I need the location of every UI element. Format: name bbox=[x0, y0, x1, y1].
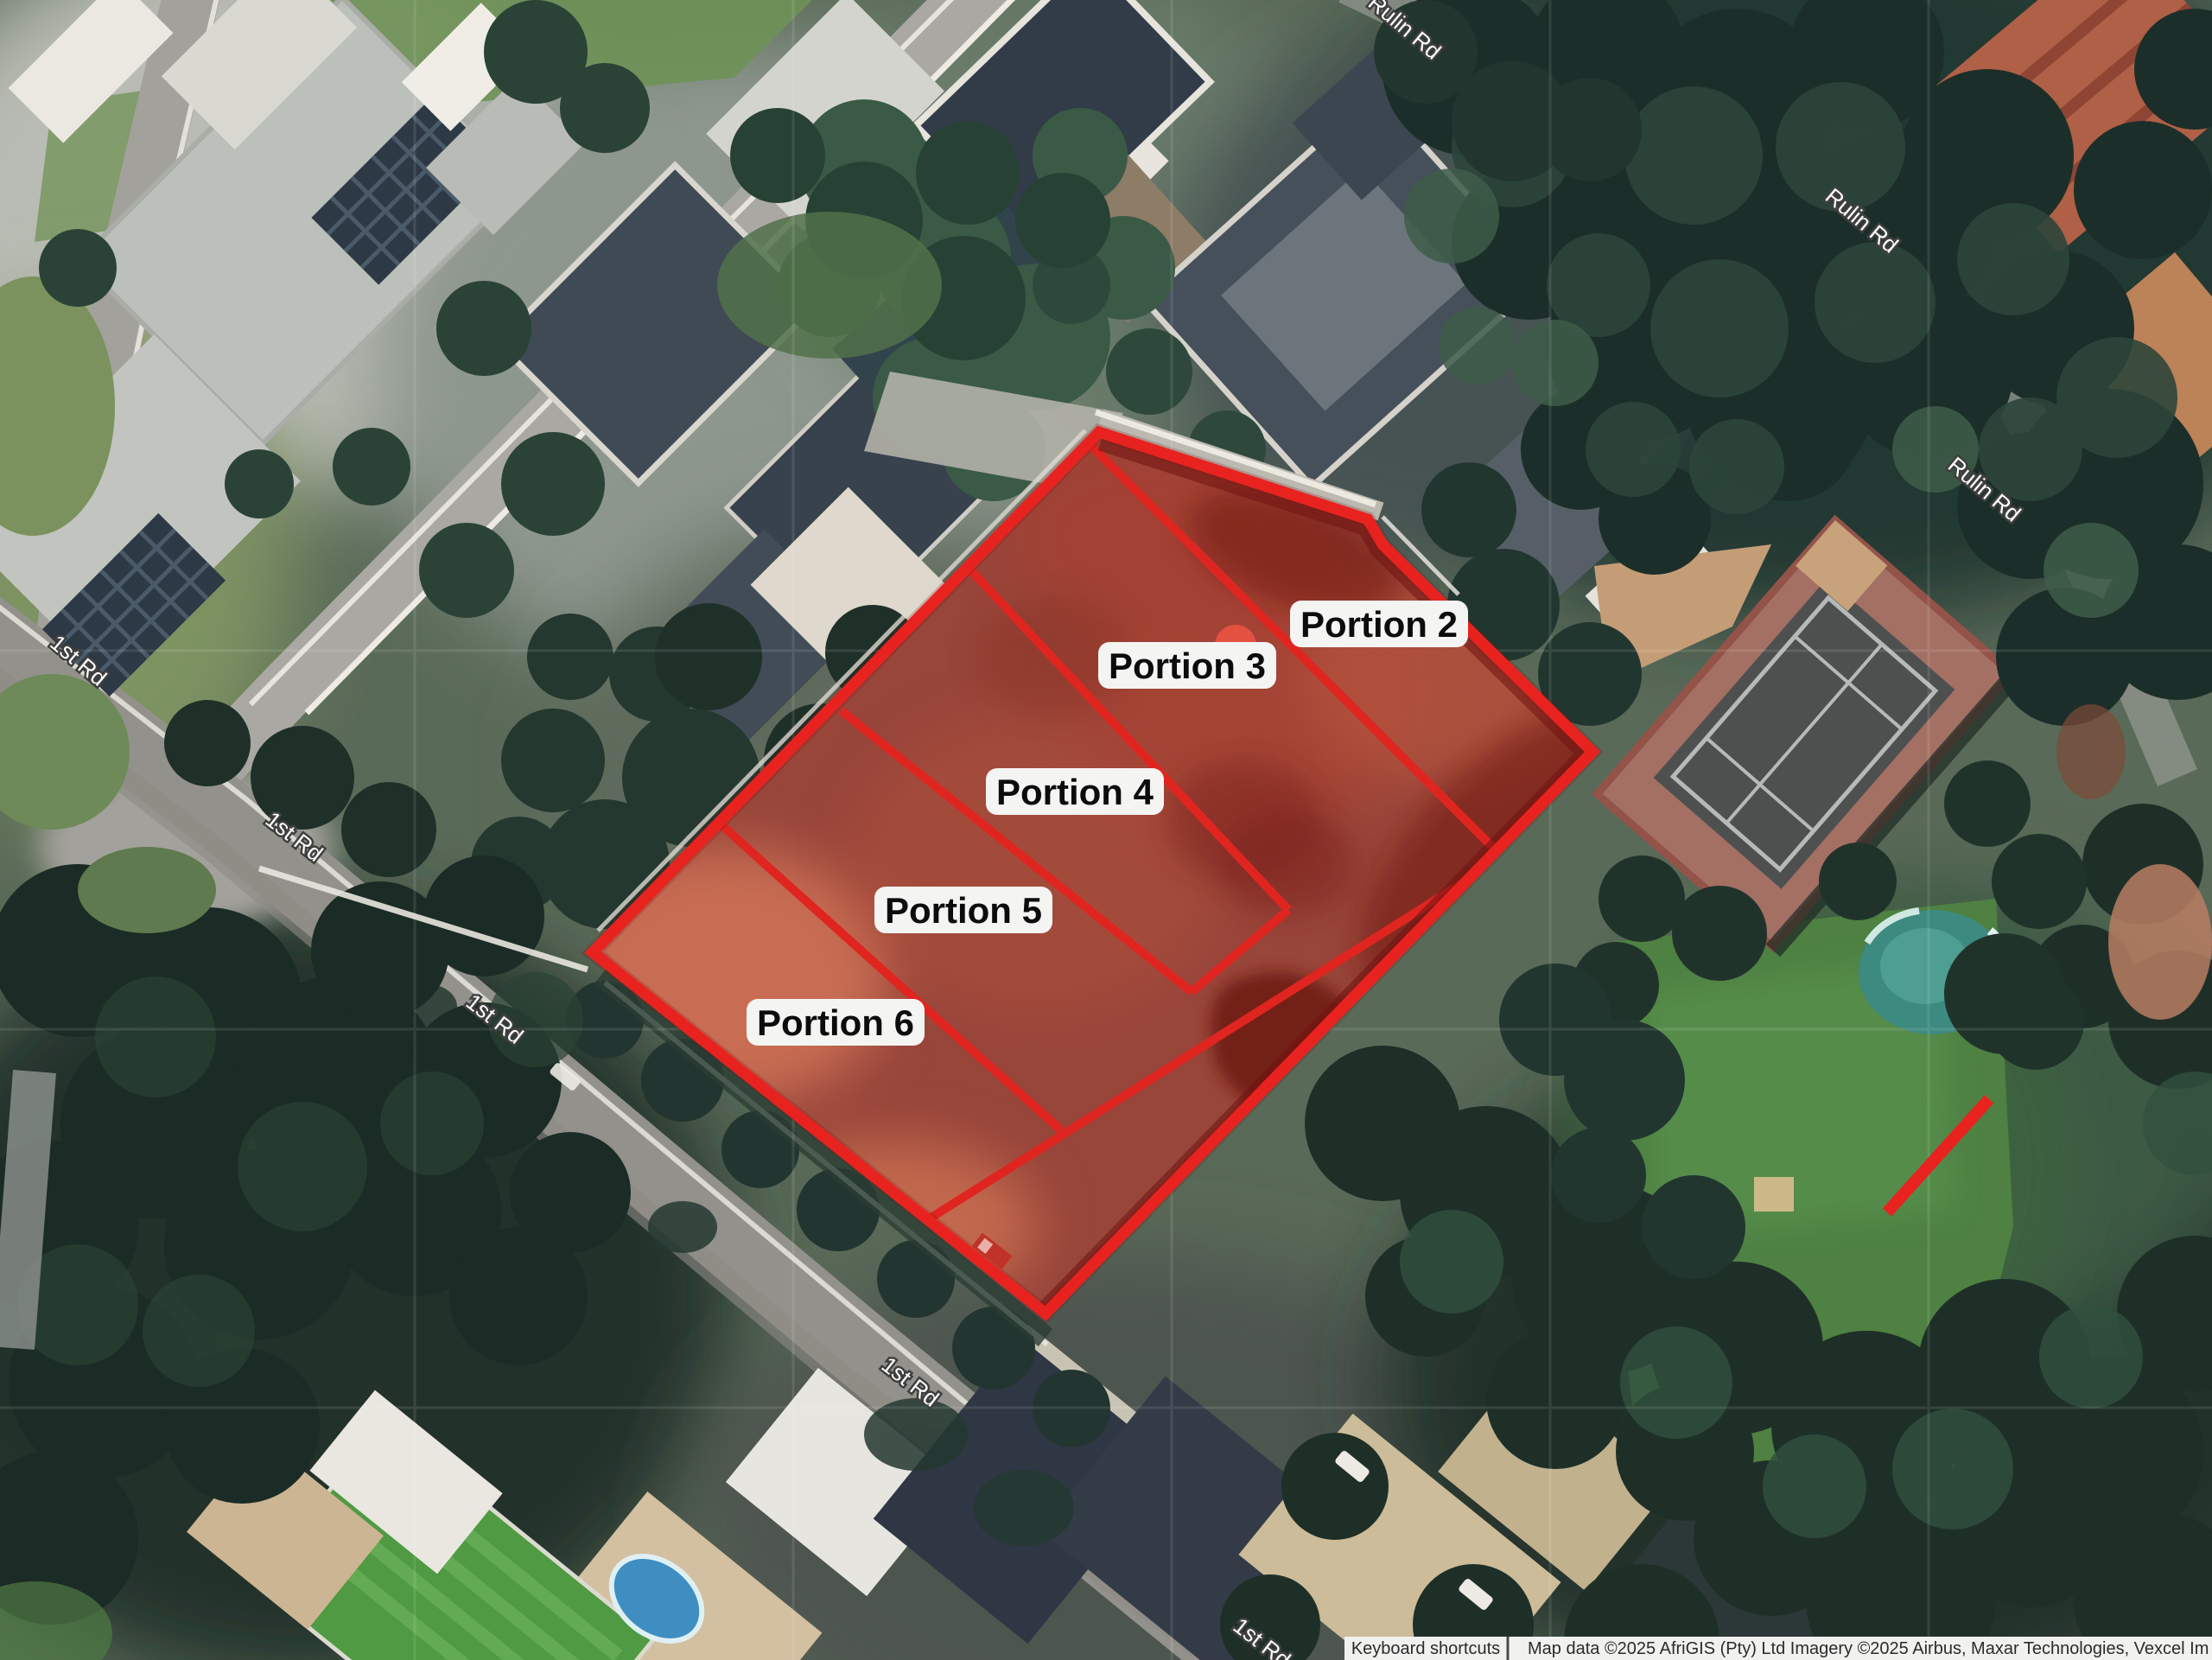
svg-text:Map data ©2025 AfriGIS (Pty) L: Map data ©2025 AfriGIS (Pty) Ltd Imagery… bbox=[1528, 1639, 2209, 1658]
svg-text:Portion 2: Portion 2 bbox=[1300, 604, 1458, 645]
svg-text:Portion 6: Portion 6 bbox=[757, 1002, 914, 1043]
svg-text:Keyboard shortcuts: Keyboard shortcuts bbox=[1351, 1639, 1500, 1658]
svg-text:Portion 3: Portion 3 bbox=[1109, 646, 1266, 686]
svg-text:Portion 4: Portion 4 bbox=[996, 772, 1154, 812]
svg-text:Portion 5: Portion 5 bbox=[885, 890, 1042, 931]
